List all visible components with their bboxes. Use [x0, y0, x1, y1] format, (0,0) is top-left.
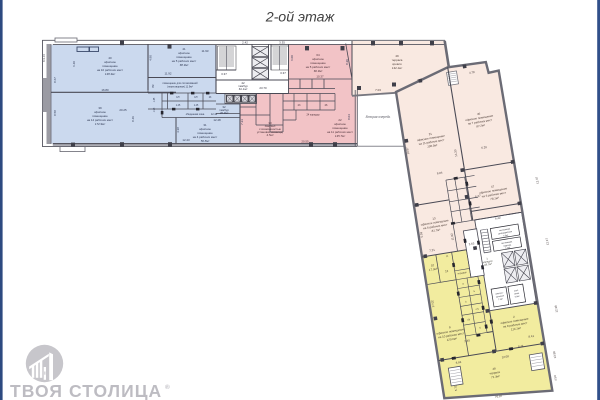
- svg-text:8.04: 8.04: [347, 114, 351, 120]
- svg-text:Вторая очередь: Вторая очередь: [366, 115, 391, 119]
- svg-text:132.1м²: 132.1м²: [392, 66, 403, 70]
- svg-text:2-ой этаж: 2-ой этаж: [265, 10, 336, 26]
- svg-text:12.48: 12.48: [213, 118, 221, 122]
- svg-text:7.03: 7.03: [375, 88, 381, 92]
- svg-text:4.38: 4.38: [176, 127, 180, 133]
- svg-text:1.45: 1.45: [176, 105, 181, 107]
- svg-text:4.90: 4.90: [149, 55, 153, 61]
- svg-text:6=1.19: 6=1.19: [43, 54, 46, 62]
- svg-text:3.37: 3.37: [221, 72, 227, 76]
- svg-text:6.40: 6.40: [72, 61, 76, 67]
- svg-text:2.42: 2.42: [242, 41, 248, 45]
- svg-text:8.58: 8.58: [53, 110, 57, 116]
- svg-text:23.70: 23.70: [259, 86, 267, 90]
- svg-text:172.9м²: 172.9м²: [95, 122, 106, 126]
- svg-text:1.45: 1.45: [194, 105, 199, 107]
- svg-text:8.29: 8.29: [345, 59, 349, 65]
- svg-text:138.3м²: 138.3м²: [105, 72, 116, 76]
- svg-text:60.9м²: 60.9м²: [314, 69, 324, 73]
- svg-text:3.37: 3.37: [280, 71, 286, 75]
- svg-text:®: ®: [165, 383, 170, 391]
- svg-text:20.25: 20.25: [119, 108, 127, 112]
- svg-text:20.9м²: 20.9м²: [219, 111, 230, 115]
- svg-text:1.45: 1.45: [154, 97, 156, 102]
- svg-text:ТВОЯ СТОЛИЦА: ТВОЯ СТОЛИЦА: [10, 381, 162, 400]
- svg-text:61.1м²: 61.1м²: [239, 87, 249, 91]
- svg-text:50.8м²: 50.8м²: [201, 139, 211, 143]
- svg-text:20.55: 20.55: [301, 140, 309, 144]
- svg-text:6.00: 6.00: [290, 55, 294, 61]
- svg-text:С/У: С/У: [176, 97, 180, 99]
- svg-text:24 коридор: 24 коридор: [306, 114, 320, 117]
- svg-text:8.67: 8.67: [53, 77, 57, 83]
- svg-text:1.93: 1.93: [154, 107, 156, 112]
- svg-text:68.9м²: 68.9м²: [180, 63, 190, 67]
- svg-text:10.37: 10.37: [316, 75, 324, 79]
- svg-text:12.43: 12.43: [182, 138, 190, 142]
- svg-text:4.5м²: 4.5м²: [267, 133, 275, 137]
- svg-text:11.93: 11.93: [201, 49, 208, 53]
- svg-text:3.35: 3.35: [279, 41, 285, 45]
- svg-text:11.92: 11.92: [164, 72, 171, 76]
- svg-text:16.80: 16.80: [101, 88, 109, 92]
- svg-text:135.7м²: 135.7м²: [335, 134, 346, 138]
- svg-text:7.23: 7.23: [240, 119, 244, 125]
- svg-text:обеденная зона: обеденная зона: [186, 113, 205, 116]
- svg-text:С/У: С/У: [194, 97, 198, 99]
- svg-text:8.49: 8.49: [131, 116, 135, 122]
- svg-text:(переговорная) 11.9м²: (переговорная) 11.9м²: [167, 86, 193, 89]
